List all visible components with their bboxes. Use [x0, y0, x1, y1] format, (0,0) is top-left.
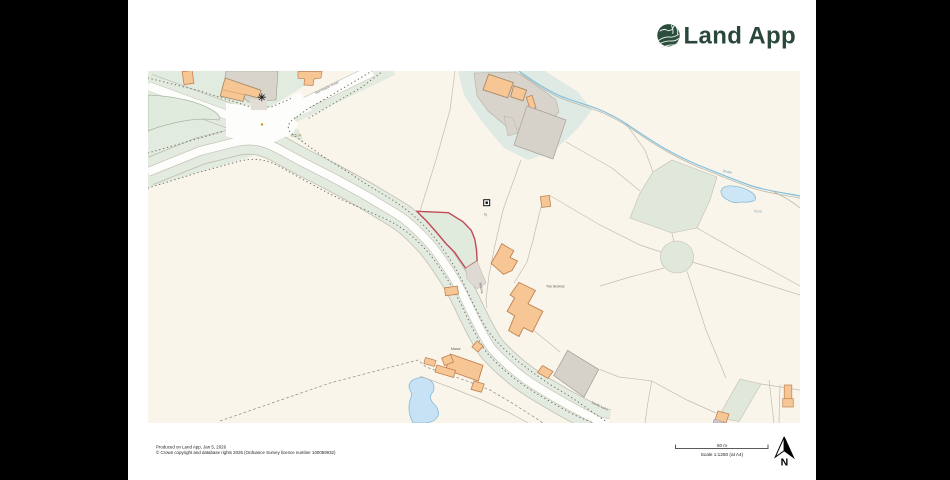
svg-text:625.04: 625.04 — [291, 134, 301, 138]
svg-text:Manor: Manor — [451, 347, 461, 351]
svg-text:Land App: Land App — [684, 22, 797, 49]
svg-text:Pond: Pond — [754, 210, 762, 214]
svg-text:Produced on Land App, Jan 5, 2: Produced on Land App, Jan 5, 2026 — [156, 444, 227, 449]
svg-text:N: N — [781, 457, 789, 469]
svg-text:Scale 1:1250 (at A4): Scale 1:1250 (at A4) — [701, 452, 744, 457]
svg-text:© Crown copyright and database: © Crown copyright and database rights 20… — [156, 450, 336, 455]
svg-text:The Growns: The Growns — [546, 285, 565, 289]
svg-text:fq: fq — [484, 213, 487, 217]
svg-text:50 m: 50 m — [717, 443, 727, 448]
